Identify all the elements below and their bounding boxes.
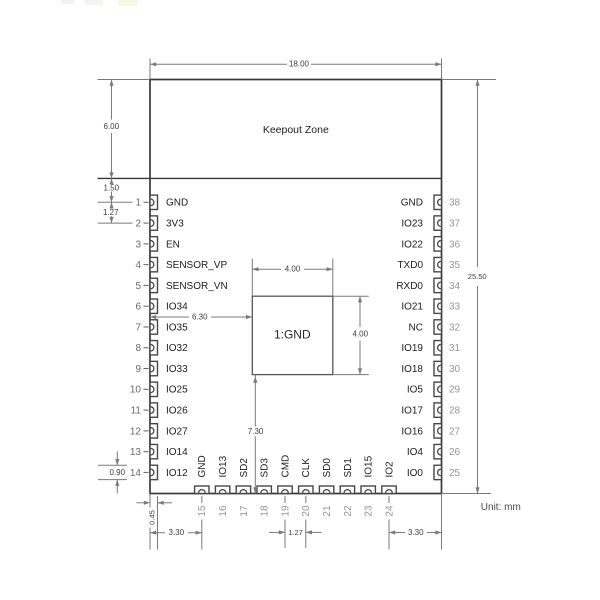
svg-text:4.00: 4.00 xyxy=(285,265,301,274)
svg-text:15: 15 xyxy=(197,505,208,517)
svg-text:29: 29 xyxy=(449,385,461,396)
svg-text:SD1: SD1 xyxy=(343,458,354,478)
svg-text:IO15: IO15 xyxy=(364,455,375,477)
svg-text:SENSOR_VN: SENSOR_VN xyxy=(166,281,228,292)
svg-text:IO35: IO35 xyxy=(166,322,188,333)
svg-text:1: 1 xyxy=(135,198,141,209)
svg-text:4.00: 4.00 xyxy=(353,329,369,338)
svg-text:IO26: IO26 xyxy=(166,406,188,417)
svg-text:20: 20 xyxy=(301,505,312,517)
svg-text:16: 16 xyxy=(218,505,229,517)
svg-text:21: 21 xyxy=(322,505,333,517)
svg-text:36: 36 xyxy=(449,239,461,250)
svg-text:RXD0: RXD0 xyxy=(396,281,423,292)
svg-text:IO0: IO0 xyxy=(407,468,424,479)
svg-text:34: 34 xyxy=(449,281,461,292)
svg-text:9: 9 xyxy=(135,364,141,375)
svg-text:17: 17 xyxy=(239,505,250,517)
svg-text:IO32: IO32 xyxy=(166,343,188,354)
svg-text:IO4: IO4 xyxy=(407,447,424,458)
svg-text:4: 4 xyxy=(135,260,141,271)
svg-text:IO13: IO13 xyxy=(218,455,229,477)
svg-text:IO19: IO19 xyxy=(401,343,423,354)
svg-text:1.27: 1.27 xyxy=(103,208,119,217)
svg-text:22: 22 xyxy=(343,505,354,517)
svg-text:IO34: IO34 xyxy=(166,302,188,313)
svg-text:7: 7 xyxy=(135,322,141,333)
svg-text:EN: EN xyxy=(166,239,180,250)
svg-text:0.45: 0.45 xyxy=(148,510,157,525)
svg-text:SENSOR_VP: SENSOR_VP xyxy=(166,260,227,271)
svg-text:35: 35 xyxy=(449,260,461,271)
svg-text:8: 8 xyxy=(135,343,141,354)
svg-text:CMD: CMD xyxy=(280,455,291,478)
svg-text:26: 26 xyxy=(449,447,461,458)
svg-text:TXD0: TXD0 xyxy=(397,260,423,271)
svg-text:IO27: IO27 xyxy=(166,426,188,437)
svg-text:1.50: 1.50 xyxy=(104,183,120,192)
svg-text:Unit: mm: Unit: mm xyxy=(481,502,521,513)
svg-text:SD2: SD2 xyxy=(239,458,250,478)
svg-text:NC: NC xyxy=(409,322,423,333)
svg-text:3: 3 xyxy=(135,239,141,250)
svg-text:33: 33 xyxy=(449,302,461,313)
svg-text:CLK: CLK xyxy=(301,458,312,478)
svg-text:14: 14 xyxy=(130,468,142,479)
svg-text:IO16: IO16 xyxy=(401,426,423,437)
svg-text:7.30: 7.30 xyxy=(248,427,264,436)
svg-text:IO12: IO12 xyxy=(166,468,188,479)
svg-text:IO18: IO18 xyxy=(401,364,423,375)
svg-text:IO33: IO33 xyxy=(166,364,188,375)
svg-text:18: 18 xyxy=(260,505,271,517)
svg-text:19: 19 xyxy=(280,505,291,517)
svg-text:IO22: IO22 xyxy=(401,239,423,250)
svg-text:IO17: IO17 xyxy=(401,406,423,417)
svg-text:30: 30 xyxy=(449,364,461,375)
svg-text:0.90: 0.90 xyxy=(110,468,126,477)
svg-text:3.30: 3.30 xyxy=(169,528,185,537)
svg-text:28: 28 xyxy=(449,406,461,417)
svg-text:3V3: 3V3 xyxy=(166,218,184,229)
svg-text:IO5: IO5 xyxy=(407,385,424,396)
svg-text:24: 24 xyxy=(384,505,395,517)
svg-text:Keepout Zone: Keepout Zone xyxy=(263,124,329,136)
svg-text:1:GND: 1:GND xyxy=(274,327,311,341)
svg-text:31: 31 xyxy=(449,343,461,354)
svg-text:32: 32 xyxy=(449,322,461,333)
svg-text:GND: GND xyxy=(197,455,208,477)
svg-text:6: 6 xyxy=(135,302,141,313)
svg-text:25.50: 25.50 xyxy=(468,272,487,281)
svg-text:23: 23 xyxy=(364,505,375,517)
svg-text:5: 5 xyxy=(135,281,141,292)
svg-text:GND: GND xyxy=(401,198,423,209)
svg-text:6.30: 6.30 xyxy=(192,313,208,322)
svg-text:25: 25 xyxy=(449,468,461,479)
svg-text:IO14: IO14 xyxy=(166,447,188,458)
svg-text:37: 37 xyxy=(449,218,461,229)
svg-text:3.30: 3.30 xyxy=(408,528,424,537)
svg-text:GND: GND xyxy=(166,198,188,209)
svg-text:13: 13 xyxy=(130,447,142,458)
svg-text:IO2: IO2 xyxy=(384,461,395,478)
svg-text:6.00: 6.00 xyxy=(104,122,120,131)
svg-text:18.00: 18.00 xyxy=(289,60,310,69)
svg-text:10: 10 xyxy=(130,385,142,396)
svg-text:1.27: 1.27 xyxy=(288,528,303,537)
svg-text:11: 11 xyxy=(131,406,142,417)
svg-text:IO25: IO25 xyxy=(166,385,188,396)
svg-text:2: 2 xyxy=(135,218,141,229)
svg-text:27: 27 xyxy=(449,426,461,437)
svg-text:IO23: IO23 xyxy=(401,218,423,229)
svg-text:IO21: IO21 xyxy=(401,302,423,313)
svg-text:38: 38 xyxy=(449,198,461,209)
svg-text:SD0: SD0 xyxy=(322,458,333,478)
svg-text:12: 12 xyxy=(130,426,142,437)
svg-text:SD3: SD3 xyxy=(260,458,271,478)
